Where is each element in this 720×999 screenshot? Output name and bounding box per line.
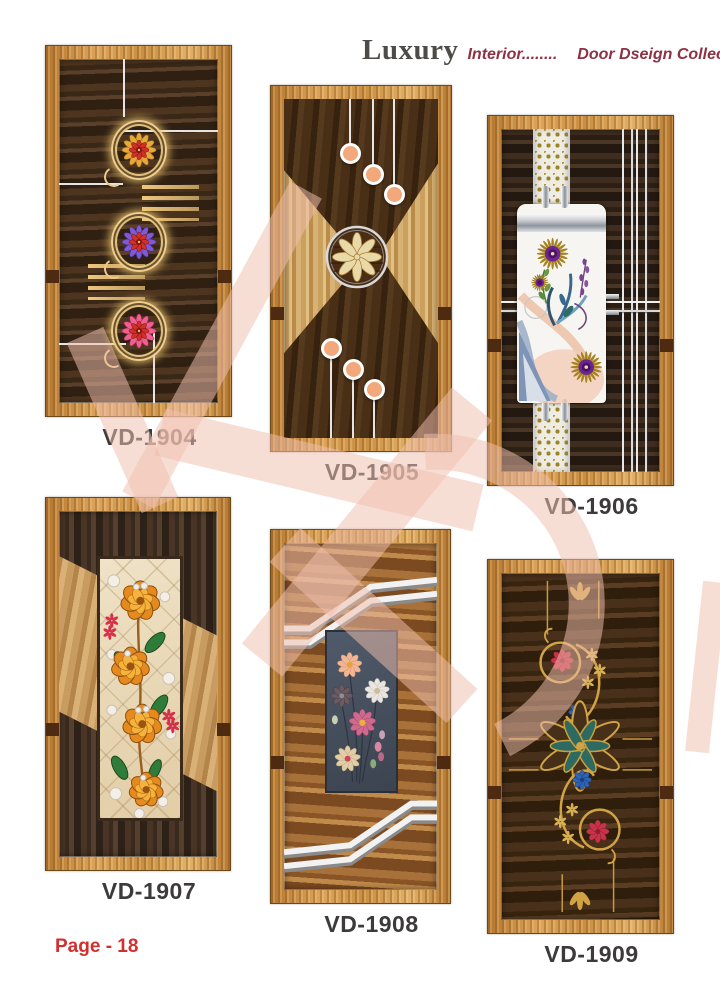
door-handle [606, 294, 619, 299]
amber-flower [110, 647, 151, 687]
door-frame [270, 529, 451, 904]
clay-daisy [331, 684, 353, 706]
frame-notch [218, 270, 231, 283]
amber-flower [119, 581, 161, 622]
door-card-vd-1907: VD-1907 [45, 497, 231, 871]
dot-ornament [340, 143, 361, 164]
clay-daisy [337, 652, 362, 677]
frame-notch [271, 756, 284, 769]
frame-notch [488, 339, 501, 352]
page-number: Page - 18 [55, 936, 138, 958]
fringe-sunflower [537, 238, 569, 270]
collection-title: Door Dseign Collecation.... [577, 46, 720, 63]
door-frame [270, 85, 452, 452]
door-panel-art [284, 99, 438, 438]
door-panel-art [59, 59, 218, 403]
frame-notch [488, 786, 501, 799]
door-frame [45, 497, 231, 871]
door-frame [45, 45, 232, 417]
door-handle [606, 310, 619, 315]
door-card-vd-1905: VD-1905 [270, 85, 452, 452]
glass-art-panel [517, 204, 606, 403]
door-panel-art [501, 573, 660, 920]
door-card-vd-1906: VD-1906 [487, 115, 674, 486]
door-code-label: VD-1905 [270, 459, 452, 486]
dot-ornament [343, 359, 364, 380]
frame-notch [271, 307, 284, 320]
door-panel-art [501, 129, 660, 472]
frame-notch [660, 339, 673, 352]
gold-paisley-ornament [501, 573, 660, 920]
frame-notch [46, 723, 59, 736]
door-card-vd-1908: VD-1908 [270, 529, 451, 904]
door-frame [487, 559, 674, 934]
door-code-label: VD-1909 [487, 941, 674, 968]
door-panel-art [284, 543, 437, 890]
door-panel-art [59, 511, 217, 857]
flower-medallion [111, 301, 167, 361]
clay-flower-panel [325, 630, 398, 794]
page-header: LuxuryInterior........Door Dseign Collec… [362, 34, 720, 67]
door-code-label: VD-1907 [45, 878, 231, 905]
wood-star-medallion [325, 225, 389, 289]
door-code-label: VD-1908 [270, 911, 451, 938]
frame-notch [438, 307, 451, 320]
flower-medallion [111, 212, 167, 272]
brand-tagline: Interior........ [467, 46, 557, 63]
flower-medallion [111, 120, 167, 180]
catalog-page: LuxuryInterior........Door Dseign Collec… [0, 0, 720, 999]
door-card-vd-1909: VD-1909 [487, 559, 674, 934]
frame-notch [437, 756, 450, 769]
door-card-vd-1904: VD-1904 [45, 45, 232, 417]
frame-notch [46, 270, 59, 283]
frame-notch [217, 723, 230, 736]
brand-name: Luxury [362, 34, 458, 66]
door-code-label: VD-1906 [487, 493, 674, 520]
door-code-label: VD-1904 [45, 424, 232, 451]
amber-flower [121, 704, 163, 745]
dot-ornament [363, 164, 384, 185]
quilted-flower-panel [97, 556, 184, 822]
door-frame [487, 115, 674, 486]
frame-notch [660, 786, 673, 799]
clay-daisy [365, 678, 390, 703]
